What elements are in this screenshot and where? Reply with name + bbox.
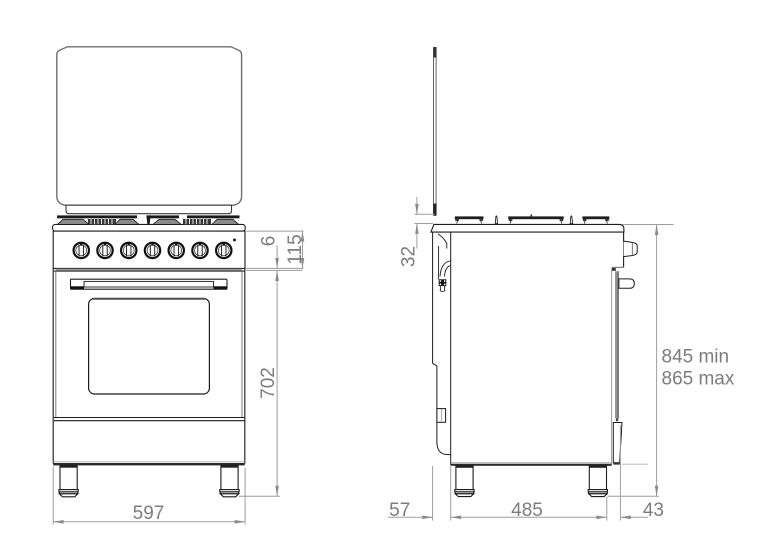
svg-text:43: 43 — [643, 500, 664, 521]
svg-text:845 min: 845 min — [662, 347, 730, 368]
svg-text:702: 702 — [258, 367, 279, 399]
svg-text:865 max: 865 max — [662, 369, 735, 390]
svg-text:597: 597 — [133, 503, 165, 524]
svg-text:32: 32 — [399, 246, 420, 267]
svg-text:115: 115 — [285, 234, 306, 264]
svg-text:57: 57 — [389, 500, 410, 521]
svg-text:6: 6 — [258, 236, 279, 247]
svg-text:485: 485 — [511, 500, 543, 521]
